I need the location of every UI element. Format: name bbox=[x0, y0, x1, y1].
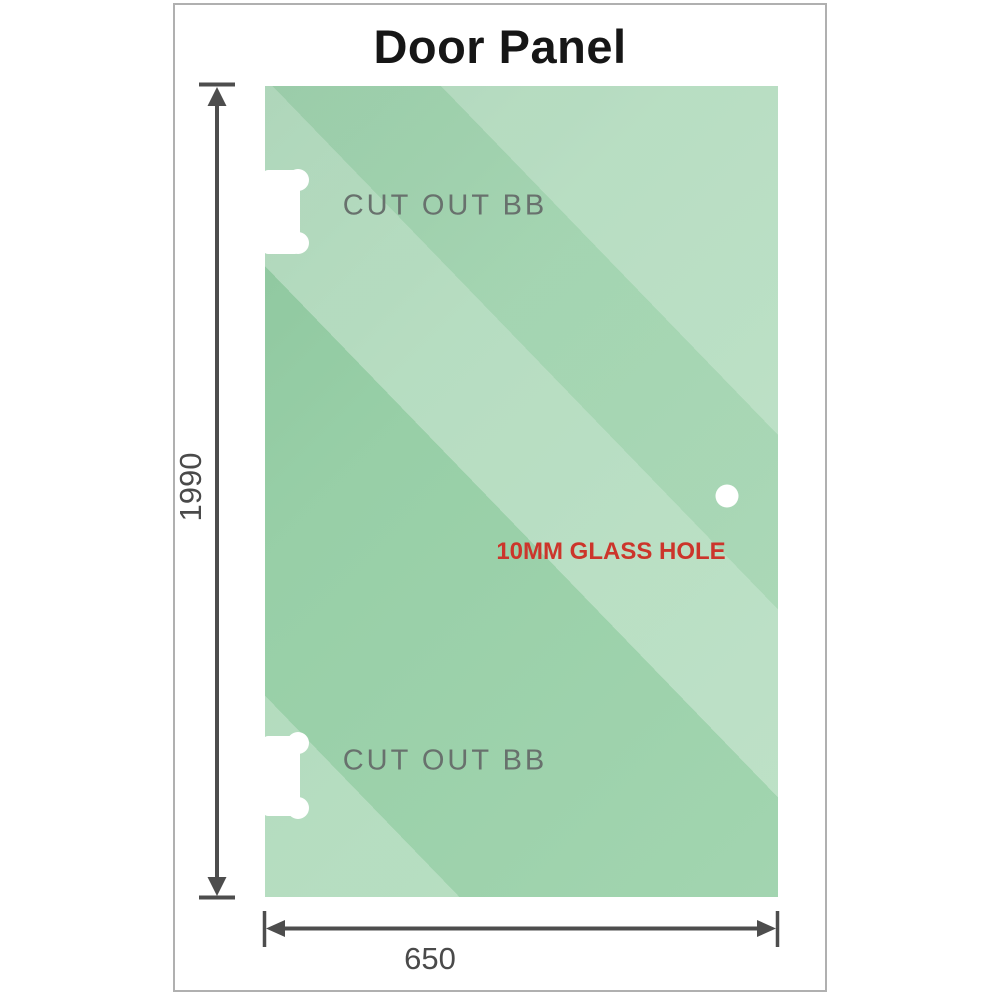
page-background: Door Panel CUT OUT BB CUT OUT BB 10MM GL… bbox=[0, 0, 1000, 1000]
hinge-cutout-top-icon bbox=[265, 169, 309, 254]
diagram-title: Door Panel bbox=[175, 19, 825, 74]
cutout-bottom-label: CUT OUT BB bbox=[343, 745, 548, 778]
hinge-cutout-bottom-icon bbox=[265, 732, 309, 819]
glass-hole-label: 10MM GLASS HOLE bbox=[496, 538, 725, 566]
glass-panel: CUT OUT BB CUT OUT BB 10MM GLASS HOLE bbox=[265, 86, 778, 897]
glass-hole-icon bbox=[716, 485, 739, 508]
cutout-top-label: CUT OUT BB bbox=[343, 190, 548, 223]
